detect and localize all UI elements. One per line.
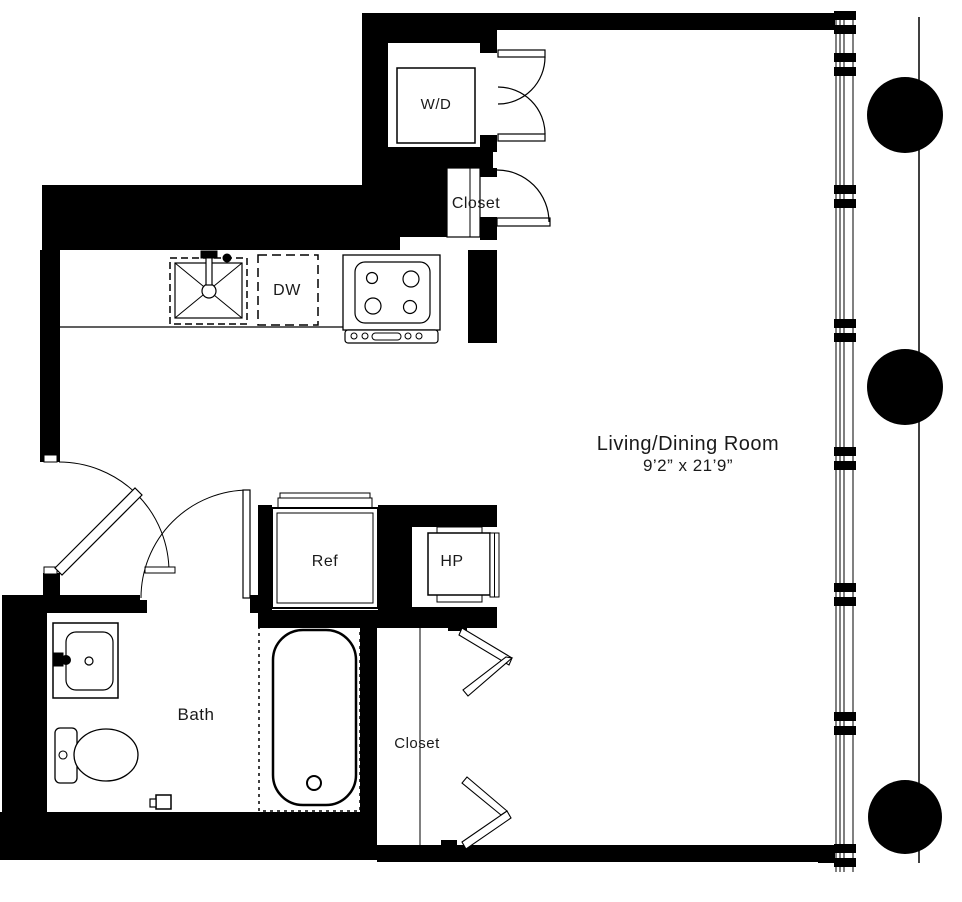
- structural-column: [868, 780, 942, 854]
- lower-closet-bifold-doors: [459, 628, 512, 849]
- floor-plan-drawing: [0, 0, 962, 902]
- bifold-leaf: [463, 657, 512, 696]
- sink-soap-knob: [223, 254, 231, 262]
- upper-closet-door-leaf: [497, 218, 550, 226]
- structural-column: [867, 349, 943, 425]
- toilet: [55, 728, 138, 783]
- dishwasher-label: DW: [257, 282, 317, 300]
- toilet-bowl: [74, 729, 138, 781]
- upper-closet-label: Closet: [428, 195, 524, 213]
- bifold-leaf: [462, 777, 507, 815]
- tub-drain: [307, 776, 321, 790]
- wall-bath-door-jamb: [138, 600, 147, 613]
- kitchen-sink: [170, 251, 247, 324]
- structural-column: [867, 77, 943, 153]
- sink-faucet-stem: [206, 256, 212, 285]
- window-wall: [836, 16, 853, 872]
- vanity-basin: [66, 632, 113, 690]
- wall-wd-left: [362, 13, 388, 185]
- stove: [343, 255, 440, 343]
- bath-label: Bath: [156, 705, 236, 725]
- floor-drain: [150, 795, 171, 809]
- wall-bath-bottom: [0, 812, 377, 860]
- bath-door-swing: [141, 490, 249, 598]
- wd-double-doors: [498, 50, 545, 141]
- bath-door-leaf: [243, 490, 250, 598]
- vanity-faucet-knob: [62, 656, 71, 665]
- wd-door-leaf-bottom: [498, 134, 545, 141]
- wd-door-swing-bottom: [498, 87, 545, 134]
- wall-wd-jamb-bottom: [480, 135, 497, 152]
- entry-door-stop-top: [44, 455, 57, 462]
- living-dining-name: Living/Dining Room: [568, 433, 808, 455]
- bath-vanity: [53, 623, 118, 698]
- wall-lower-closet-jamb-bottom: [441, 840, 457, 848]
- wall-closet-jamb-top: [480, 168, 497, 177]
- wall-ref-left: [258, 505, 272, 612]
- wall-ref-bottom: [258, 610, 383, 628]
- wall-wd-bottom: [387, 147, 493, 168]
- heat-pump-label: HP: [412, 553, 492, 571]
- ref-door: [278, 498, 372, 508]
- entry-door-stop-bar: [145, 567, 175, 573]
- living-dining-label: Living/Dining Room 9’2” x 21’9”: [568, 433, 808, 477]
- wd-door-leaf-top: [498, 50, 545, 57]
- wall-right-of-stove: [468, 250, 497, 343]
- stove-control-panel: [345, 330, 438, 343]
- living-dining-dimensions: 9’2” x 21’9”: [568, 455, 808, 477]
- wall-window-bottom-cap: [818, 848, 835, 863]
- wall-left-upper: [40, 250, 60, 462]
- hp-tab-bottom: [437, 595, 482, 602]
- refrigerator-label: Ref: [285, 553, 365, 571]
- lower-closet-label: Closet: [369, 735, 465, 752]
- sink-faucet-handles: [201, 251, 217, 258]
- bifold-leaf: [462, 811, 511, 849]
- wall-kitchen-top: [42, 185, 400, 250]
- wd-door-swing-top: [498, 57, 545, 104]
- sink-drain: [202, 284, 216, 298]
- washer-dryer-label: W/D: [388, 96, 484, 113]
- refrigerator: [272, 493, 378, 608]
- wall-wd-jamb-top: [480, 43, 497, 53]
- wall-closet-jamb-bottom: [480, 217, 497, 240]
- entry-door-leaf: [55, 488, 142, 575]
- floor-plan: W/D Closet DW Living/Dining Room 9’2” x …: [0, 0, 962, 902]
- stove-cooktop: [355, 262, 430, 323]
